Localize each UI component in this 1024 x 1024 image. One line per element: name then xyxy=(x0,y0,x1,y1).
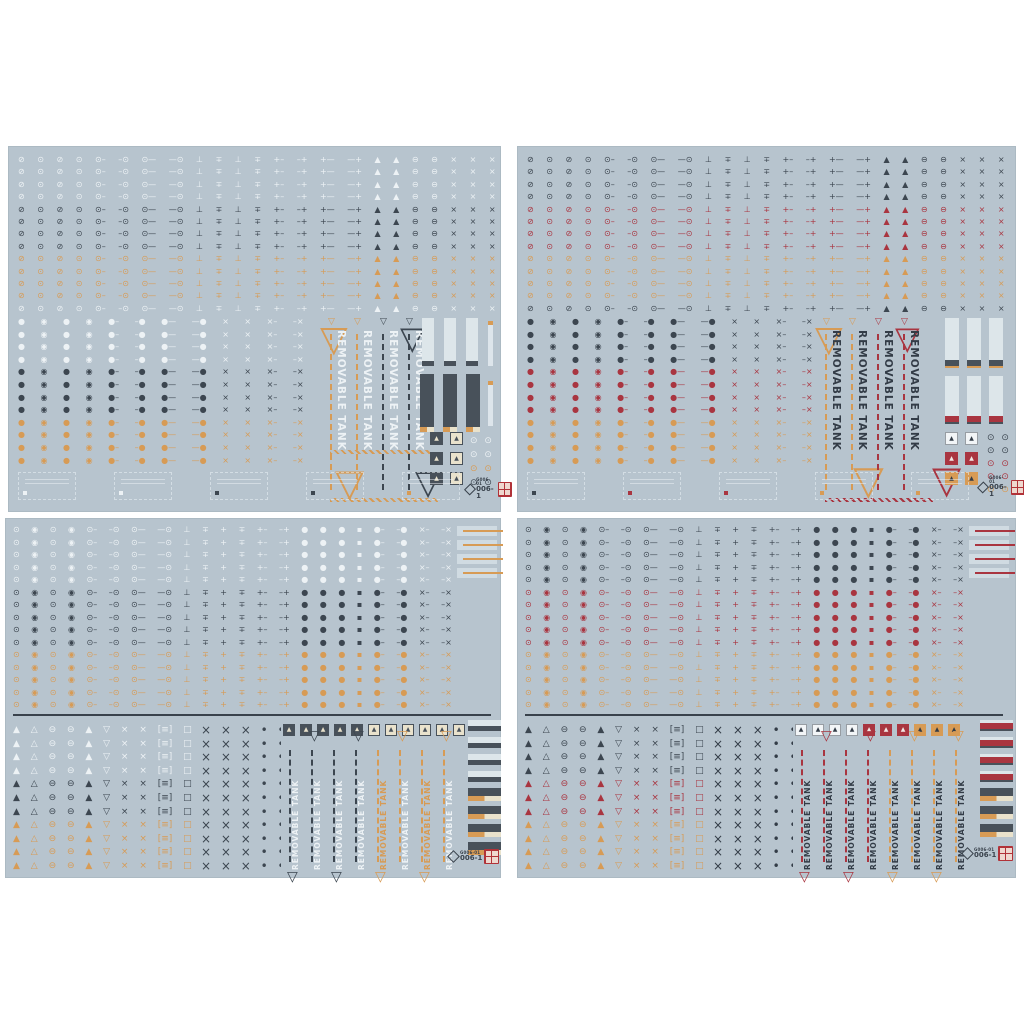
warning-label-square-cream: ▲ xyxy=(450,432,463,445)
brand-diamond-logo xyxy=(977,481,989,493)
bracket-box xyxy=(18,472,76,500)
symbol-row: × × × • • xyxy=(713,792,793,806)
bracket-box-microtext xyxy=(217,483,261,484)
symbol-row: × × × • • xyxy=(201,751,281,765)
symbol-row: ⊙ ◉ ⊙ ◉ ⊙– –⊙ ⊙— —⊙ ⊥ ∓ + ∓ +– –+ ● ● ● … xyxy=(525,637,965,650)
micro-text-panel xyxy=(488,321,493,366)
bracket-box-microtext xyxy=(534,479,578,480)
symbol-row: ▲ △ ⊖ ⊖ ▲ ▽ × × [≡] □ ▪ xyxy=(13,833,195,847)
warning-label-grid: ▲▲▲▲▲▲▲▲▲▲ xyxy=(795,724,960,736)
warning-label-square-dark: ▲ xyxy=(430,432,443,445)
symbol-row: ● ◉ ● ◉ ●– –● ●— —● × × ×– –× ×— —× xyxy=(18,455,318,468)
micro-text-panel xyxy=(969,526,1009,536)
warning-label-square-white: ▲ xyxy=(846,724,858,736)
micro-text-panel xyxy=(969,540,1009,550)
panel-footer-accent xyxy=(945,366,959,368)
micro-text-panel xyxy=(444,318,456,366)
bracket-box-microtext xyxy=(918,483,962,484)
brand-diamond-logo xyxy=(447,850,460,863)
warning-label-square-white: ▲ xyxy=(945,432,958,445)
symbol-row: ● ◉ ● ◉ ●– –● ●— —● × × ×– –× ×— —× xyxy=(527,366,827,379)
removable-tank-label: REMOVABLE TANK xyxy=(913,746,922,870)
panel-footer-mark xyxy=(468,743,501,748)
symbol-row: ⊙ ◉ ⊙ ◉ ⊙– –⊙ ⊙— —⊙ ⊥ ∓ + ∓ +– –+ ● ● ● … xyxy=(13,537,453,550)
symbol-row: ⊘ ⊙ ⊘ ⊙ ⊙– –⊙ ⊙— —⊙ ⊥ ∓ ⊥ ∓ +– –+ +— —+ … xyxy=(18,216,498,228)
symbol-row: ▲ △ ⊖ ⊖ ▲ ▽ × × [≡] □ ▪ xyxy=(525,846,707,860)
symbol-row: × × × • • xyxy=(201,806,281,820)
brand-codes: G006-01006-1 xyxy=(974,848,996,859)
seal-glyph-cell xyxy=(492,851,498,857)
symbol-row: ⊙ ◉ ⊙ ◉ ⊙– –⊙ ⊙— —⊙ ⊥ ∓ + ∓ +– –+ ● ● ● … xyxy=(525,612,965,625)
bracket-box-dot xyxy=(724,491,728,495)
symbol-row: ⊙ ◉ ⊙ ◉ ⊙– –⊙ ⊙— —⊙ ⊥ ∓ + ∓ +– –+ ● ● ● … xyxy=(13,687,453,700)
micro-text-panel xyxy=(989,318,1003,368)
symbol-row: × × × • • xyxy=(713,806,793,820)
symbol-row: ▲ △ ⊖ ⊖ ▲ ▽ × × [≡] □ ▪ xyxy=(525,738,707,752)
symbol-row: × × × • • xyxy=(201,819,281,833)
panel-footer-mark xyxy=(466,427,480,432)
symbol-row: ⊘ ⊙ ⊘ ⊙ ⊙– –⊙ ⊙— —⊙ ⊥ ∓ ⊥ ∓ +– –+ +— —+ … xyxy=(527,216,1011,228)
symbol-grid: ⊙ ◉ ⊙ ◉ ⊙– –⊙ ⊙— —⊙ ⊥ ∓ + ∓ +– –+ ● ● ● … xyxy=(13,524,453,712)
panel-footer-mark xyxy=(422,361,434,366)
panel-footer-accent xyxy=(989,422,1003,424)
removable-tank-column: ▽REMOVABLE TANK xyxy=(843,744,865,868)
symbol-row: × × × • • xyxy=(201,792,281,806)
removable-tank-column: ▽REMOVABLE TANK xyxy=(875,328,901,496)
tank-dash-line xyxy=(877,334,879,490)
symbol-row: × × × • • xyxy=(201,738,281,752)
bracket-box-microtext xyxy=(822,479,866,480)
panel-footer-mark xyxy=(980,832,1013,837)
symbol-row: ▲ △ ⊖ ⊖ ▲ ▽ × × [≡] □ ▪ xyxy=(525,819,707,833)
symbol-row: ⊙ ◉ ⊙ ◉ ⊙– –⊙ ⊙— —⊙ ⊥ ∓ + ∓ +– –+ ● ● ● … xyxy=(13,562,453,575)
seal-glyph-cell xyxy=(492,857,498,863)
symbol-row: ● ◉ ● ◉ ●– –● ●— —● × × ×– –× ×— —× xyxy=(18,329,318,342)
bracket-box-microtext xyxy=(630,483,674,484)
warning-label-square-red: ▲ xyxy=(880,724,892,736)
micro-text-panel xyxy=(420,374,434,432)
tank-triangle-icon: ▽ xyxy=(309,729,320,743)
tank-triangle-icon: ▽ xyxy=(875,318,882,327)
decal-sheet-top-left: ⊘ ⊙ ⊘ ⊙ ⊙– –⊙ ⊙— —⊙ ⊥ ∓ ⊥ ∓ +– –+ +— —+ … xyxy=(8,146,501,512)
tank-triangle-icon: ▽ xyxy=(287,870,298,884)
removable-tank-column: ▽REMOVABLE TANK xyxy=(375,744,397,868)
micro-text-panel xyxy=(980,788,1013,801)
brand-codes: G006-01006-1 xyxy=(989,476,1009,498)
tank-dash-line xyxy=(851,334,853,490)
bracket-box-dot xyxy=(23,491,27,495)
micro-text-panel xyxy=(443,374,457,432)
symbol-row: ⊘ ⊙ ⊘ ⊙ ⊙– –⊙ ⊙— —⊙ ⊥ ∓ ⊥ ∓ +– –+ +— —+ … xyxy=(18,204,498,216)
removable-tank-column: ▽REMOVABLE TANK xyxy=(887,744,909,868)
tank-dash-line xyxy=(356,334,358,490)
micro-text-panel xyxy=(466,374,480,432)
symbol-row: ▲ △ ⊖ ⊖ ▲ ▽ × × [≡] □ ▪ xyxy=(13,846,195,860)
symbol-row: ● ◉ ● ◉ ●– –● ●— —● × × ×– –× ×— —× xyxy=(527,379,827,392)
tank-triangle-icon: ▽ xyxy=(331,870,342,884)
symbol-row: ▲ △ ⊖ ⊖ ▲ ▽ × × [≡] □ ▪ xyxy=(525,724,707,738)
brand-codes: G006-01006-1 xyxy=(476,478,496,500)
symbol-row: ▲ △ ⊖ ⊖ ▲ ▽ × × [≡] □ ▪ xyxy=(13,806,195,820)
symbol-row: ● ◉ ● ◉ ●– –● ●— —● × × ×– –× ×— —× xyxy=(527,429,827,442)
panel-footer-accent xyxy=(989,366,1003,368)
symbol-row: ▲ △ ⊖ ⊖ ▲ ▽ × × [≡] □ ▪ xyxy=(13,860,195,874)
tank-triangle-icon: ▽ xyxy=(953,729,964,743)
tank-triangle-icon: ▽ xyxy=(419,870,430,884)
removable-tank-column: ▽REMOVABLE TANK xyxy=(328,328,354,496)
bracket-box-microtext xyxy=(630,479,674,480)
symbol-row: ⊙ ◉ ⊙ ◉ ⊙– –⊙ ⊙— —⊙ ⊥ ∓ + ∓ +– –+ ● ● ● … xyxy=(525,699,965,712)
tank-triangle-icon: ▽ xyxy=(823,318,830,327)
bracket-box-dot xyxy=(215,491,219,495)
seal-glyph-cell xyxy=(1018,481,1023,487)
brand-diamond-logo xyxy=(961,847,974,860)
bracket-box-microtext xyxy=(726,483,770,484)
symbol-row: × × × • • xyxy=(713,724,793,738)
tank-dash-line xyxy=(382,334,384,490)
bracket-box-microtext xyxy=(217,479,261,480)
removable-tank-label: REMOVABLE TANK xyxy=(423,746,432,870)
symbol-grid: × × × • •× × × • •× × × • •× × × • •× × … xyxy=(713,724,793,874)
warning-label-square-dark: ▲ xyxy=(283,724,295,736)
micro-text-panel xyxy=(468,824,501,837)
panel-center-dash xyxy=(463,544,503,546)
tank-dash-line xyxy=(330,334,332,490)
tank-dash-line xyxy=(825,334,827,490)
tank-dash-line xyxy=(408,334,410,490)
seal-glyph-cell xyxy=(1006,854,1012,860)
symbol-row: ● ◉ ● ◉ ●– –● ●— —● × × ×– –× ×— —× xyxy=(527,316,827,329)
bracket-box xyxy=(306,472,364,500)
symbol-row: ▲ △ ⊖ ⊖ ▲ ▽ × × [≡] □ ▪ xyxy=(13,738,195,752)
bracket-box-dot xyxy=(820,491,824,495)
panel-center-dash xyxy=(975,530,1015,532)
symbol-row: ⊙ ◉ ⊙ ◉ ⊙– –⊙ ⊙— —⊙ ⊥ ∓ + ∓ +– –+ ● ● ● … xyxy=(525,562,965,575)
seal-glyph-cell xyxy=(486,857,492,863)
symbol-row: × × × • • xyxy=(713,833,793,847)
symbol-row: ⊘ ⊙ ⊘ ⊙ ⊙– –⊙ ⊙— —⊙ ⊥ ∓ ⊥ ∓ +– –+ +— —+ … xyxy=(18,191,498,203)
circle-pair-row: ⊙ ⊙ xyxy=(987,432,1009,445)
symbol-row: ● ◉ ● ◉ ●– –● ●— —● × × ×– –× ×— —× xyxy=(527,329,827,342)
bracket-box-microtext xyxy=(25,483,69,484)
decal-sheet-top-right: ⊘ ⊙ ⊘ ⊙ ⊙– –⊙ ⊙— —⊙ ⊥ ∓ ⊥ ∓ +– –+ +— —+ … xyxy=(517,146,1016,512)
symbol-grid: ⊘ ⊙ ⊘ ⊙ ⊙– –⊙ ⊙— —⊙ ⊥ ∓ ⊥ ∓ +– –+ +— —+ … xyxy=(527,154,1011,315)
bracket-box-dot xyxy=(916,491,920,495)
bracket-box-microtext xyxy=(822,483,866,484)
warning-label-square-dark: ▲ xyxy=(334,724,346,736)
removable-tank-column: ▽REMOVABLE TANK xyxy=(901,328,927,496)
symbol-row: × × × • • xyxy=(201,833,281,847)
red-seal-logo xyxy=(1011,480,1024,495)
tank-triangle-icon: ▽ xyxy=(406,318,413,327)
warning-label-square-white: ▲ xyxy=(795,724,807,736)
seal-glyph-cell xyxy=(1012,488,1017,494)
tank-triangle-icon: ▽ xyxy=(441,729,452,743)
seal-glyph-cell xyxy=(1018,488,1023,494)
panel-footer-mark xyxy=(468,796,501,801)
symbol-row: ● ◉ ● ◉ ●– –● ●— —● × × ×– –× ×— —× xyxy=(18,366,318,379)
symbol-row: ⊙ ◉ ⊙ ◉ ⊙– –⊙ ⊙— —⊙ ⊥ ∓ + ∓ +– –+ ● ● ● … xyxy=(525,624,965,637)
symbol-row: ⊙ ◉ ⊙ ◉ ⊙– –⊙ ⊙— —⊙ ⊥ ∓ + ∓ +– –+ ● ● ● … xyxy=(525,549,965,562)
removable-tank-label: REMOVABLE TANK xyxy=(825,746,834,870)
panel-footer-mark xyxy=(468,814,501,819)
removable-tank-column: ▽REMOVABLE TANK xyxy=(354,328,380,496)
warning-label-square-red: ▲ xyxy=(965,452,978,465)
panel-footer-mark xyxy=(468,777,501,782)
symbol-grid: ⊘ ⊙ ⊘ ⊙ ⊙– –⊙ ⊙— —⊙ ⊥ ∓ ⊥ ∓ +– –+ +— —+ … xyxy=(18,154,498,315)
bracket-box xyxy=(114,472,172,500)
symbol-row: ● ◉ ● ◉ ●– –● ●— —● × × ×– –× ×— —× xyxy=(18,429,318,442)
symbol-grid: × × × • •× × × • •× × × • •× × × • •× × … xyxy=(201,724,281,874)
removable-tank-label: REMOVABLE TANK xyxy=(847,746,856,870)
panel-center-dash xyxy=(975,572,1015,574)
symbol-row: ⊘ ⊙ ⊘ ⊙ ⊙– –⊙ ⊙— —⊙ ⊥ ∓ ⊥ ∓ +– –+ +— —+ … xyxy=(18,290,498,302)
panel-footer-accent xyxy=(980,746,1013,748)
bracket-box xyxy=(719,472,777,500)
symbol-row: × × × • • xyxy=(201,860,281,874)
symbol-row: ⊙ ◉ ⊙ ◉ ⊙– –⊙ ⊙— —⊙ ⊥ ∓ + ∓ +– –+ ● ● ● … xyxy=(525,574,965,587)
bracket-box xyxy=(210,472,268,500)
removable-tank-label: REMOVABLE TANK xyxy=(869,746,878,870)
removable-tank-column: ▽REMOVABLE TANK xyxy=(909,744,931,868)
red-seal-logo xyxy=(484,849,499,864)
symbol-row: ● ◉ ● ◉ ●– –● ●— —● × × ×– –× ×— —× xyxy=(527,442,827,455)
panel-center-dash xyxy=(975,544,1015,546)
warning-label-row: ▲▲ xyxy=(430,432,463,445)
warning-label-row: ▲▲ xyxy=(430,452,463,465)
symbol-row: ⊙ ◉ ⊙ ◉ ⊙– –⊙ ⊙— —⊙ ⊥ ∓ + ∓ +– –+ ● ● ● … xyxy=(525,662,965,675)
symbol-row: ⊙ ◉ ⊙ ◉ ⊙– –⊙ ⊙— —⊙ ⊥ ∓ + ∓ +– –+ ● ● ● … xyxy=(13,699,453,712)
micro-text-panel xyxy=(980,720,1013,731)
decal-sheet-collage: ⊘ ⊙ ⊘ ⊙ ⊙– –⊙ ⊙— —⊙ ⊥ ∓ ⊥ ∓ +– –+ +— —+ … xyxy=(0,0,1024,1024)
symbol-grid: ● ◉ ● ◉ ●– –● ●— —● × × ×– –× ×— —×● ◉ ●… xyxy=(527,316,827,467)
brand-block: G006-01006-1 xyxy=(979,476,1024,498)
removable-tank-column: ▽REMOVABLE TANK xyxy=(353,744,375,868)
section-divider-line xyxy=(525,714,1003,716)
warning-label-square-dark: ▲ xyxy=(430,452,443,465)
section-divider-line xyxy=(13,714,491,716)
seal-glyph-cell xyxy=(1000,848,1006,854)
micro-text-panel xyxy=(989,376,1003,424)
panel-footer-accent xyxy=(980,763,1013,765)
micro-text-panel xyxy=(468,771,501,782)
panel-dot xyxy=(488,321,493,325)
symbol-row: × × × • • xyxy=(713,860,793,874)
symbol-row: ⊘ ⊙ ⊘ ⊙ ⊙– –⊙ ⊙— —⊙ ⊥ ∓ ⊥ ∓ +– –+ +— —+ … xyxy=(18,179,498,191)
symbol-row: ▲ △ ⊖ ⊖ ▲ ▽ × × [≡] □ ▪ xyxy=(525,778,707,792)
symbol-row: ● ◉ ● ◉ ●– –● ●— —● × × ×– –× ×— —× xyxy=(18,392,318,405)
symbol-row: ⊙ ◉ ⊙ ◉ ⊙– –⊙ ⊙— —⊙ ⊥ ∓ + ∓ +– –+ ● ● ● … xyxy=(525,599,965,612)
seal-glyph-cell xyxy=(1000,854,1006,860)
symbol-row: ⊙ ◉ ⊙ ◉ ⊙– –⊙ ⊙— —⊙ ⊥ ∓ + ∓ +– –+ ● ● ● … xyxy=(13,587,453,600)
symbol-row: ⊙ ◉ ⊙ ◉ ⊙– –⊙ ⊙— —⊙ ⊥ ∓ + ∓ +– –+ ● ● ● … xyxy=(13,574,453,587)
tank-triangle-icon: ▽ xyxy=(328,318,335,327)
symbol-row: ● ◉ ● ◉ ●– –● ●— —● × × ×– –× ×— —× xyxy=(18,341,318,354)
symbol-row: ⊙ ◉ ⊙ ◉ ⊙– –⊙ ⊙— —⊙ ⊥ ∓ + ∓ +– –+ ● ● ● … xyxy=(525,524,965,537)
symbol-row: ▲ △ ⊖ ⊖ ▲ ▽ × × [≡] □ ▪ xyxy=(13,765,195,779)
red-seal-logo xyxy=(498,482,512,497)
bracket-box-microtext xyxy=(534,483,578,484)
tank-triangle-icon: ▽ xyxy=(397,729,408,743)
warning-label-square-cream: ▲ xyxy=(385,724,397,736)
removable-tank-label: REMOVABLE TANK xyxy=(357,746,366,870)
panel-footer-accent xyxy=(980,780,1013,782)
circle-pair-row: ⊙ ⊙ xyxy=(470,448,492,462)
symbol-row: ▲ △ ⊖ ⊖ ▲ ▽ × × [≡] □ ▪ xyxy=(525,765,707,779)
red-seal-logo xyxy=(998,846,1013,861)
bracket-box-microtext xyxy=(409,483,453,484)
bracket-box-microtext xyxy=(25,479,69,480)
panel-footer-mark xyxy=(468,832,501,837)
symbol-row: ● ◉ ● ◉ ●– –● ●— —● × × ×– –× ×— —× xyxy=(18,354,318,367)
bracket-box-dot xyxy=(628,491,632,495)
symbol-row: ▲ △ ⊖ ⊖ ▲ ▽ × × [≡] □ ▪ xyxy=(13,819,195,833)
brand-code-line2: 006-1 xyxy=(476,486,496,500)
symbol-row: ▲ △ ⊖ ⊖ ▲ ▽ × × [≡] □ ▪ xyxy=(13,751,195,765)
symbol-row: ⊘ ⊙ ⊘ ⊙ ⊙– –⊙ ⊙— —⊙ ⊥ ∓ ⊥ ∓ +– –+ +— —+ … xyxy=(527,266,1011,278)
tank-triangle-icon: ▽ xyxy=(375,870,386,884)
brand-code-line2: 006-1 xyxy=(974,852,996,859)
seal-glyph-cell xyxy=(1006,848,1012,854)
symbol-row: × × × • • xyxy=(201,778,281,792)
bracket-box-microtext xyxy=(121,479,165,480)
symbol-row: ● ◉ ● ◉ ●– –● ●— —● × × ×– –× ×— —× xyxy=(527,404,827,417)
micro-text-panel xyxy=(468,720,501,731)
bracket-box xyxy=(911,472,969,500)
bracket-box-microtext xyxy=(121,483,165,484)
removable-tank-column: ▽REMOVABLE TANK xyxy=(287,744,309,868)
seal-glyph-cell xyxy=(505,490,510,496)
warning-label-square-cream: ▲ xyxy=(450,452,463,465)
bracket-box xyxy=(623,472,681,500)
symbol-row: ⊙ ◉ ⊙ ◉ ⊙– –⊙ ⊙— —⊙ ⊥ ∓ + ∓ +– –+ ● ● ● … xyxy=(13,662,453,675)
tank-triangle-icon: ▽ xyxy=(380,318,387,327)
brand-code-line2: 006-1 xyxy=(989,484,1009,498)
symbol-row: ▲ △ ⊖ ⊖ ▲ ▽ × × [≡] □ ▪ xyxy=(525,806,707,820)
symbol-row: ⊘ ⊙ ⊘ ⊙ ⊙– –⊙ ⊙— —⊙ ⊥ ∓ ⊥ ∓ +– –+ +— —+ … xyxy=(18,278,498,290)
symbol-grid: ▲ △ ⊖ ⊖ ▲ ▽ × × [≡] □ ▪▲ △ ⊖ ⊖ ▲ ▽ × × [… xyxy=(13,724,195,874)
symbol-row: ▲ △ ⊖ ⊖ ▲ ▽ × × [≡] □ ▪ xyxy=(525,792,707,806)
symbol-row: ⊙ ◉ ⊙ ◉ ⊙– –⊙ ⊙— —⊙ ⊥ ∓ + ∓ +– –+ ● ● ● … xyxy=(13,624,453,637)
removable-tank-cluster: ▽REMOVABLE TANK▽REMOVABLE TANK▽REMOVABLE… xyxy=(328,328,432,496)
symbol-row: ⊘ ⊙ ⊘ ⊙ ⊙– –⊙ ⊙— —⊙ ⊥ ∓ ⊥ ∓ +– –+ +— —+ … xyxy=(527,278,1011,290)
bracket-box-dot xyxy=(532,491,536,495)
seal-glyph-cell xyxy=(505,483,510,489)
panel-footer-mark xyxy=(468,726,501,731)
micro-text-panel xyxy=(980,771,1013,782)
panel-footer-mark xyxy=(444,361,456,366)
symbol-row: ● ◉ ● ◉ ●– –● ●— —● × × ×– –× ×— —× xyxy=(18,404,318,417)
symbol-row: ⊘ ⊙ ⊘ ⊙ ⊙– –⊙ ⊙— —⊙ ⊥ ∓ ⊥ ∓ +– –+ +— —+ … xyxy=(18,154,498,166)
symbol-row: ⊙ ◉ ⊙ ◉ ⊙– –⊙ ⊙— —⊙ ⊥ ∓ + ∓ +– –+ ● ● ● … xyxy=(525,587,965,600)
symbol-row: ⊙ ◉ ⊙ ◉ ⊙– –⊙ ⊙— —⊙ ⊥ ∓ + ∓ +– –+ ● ● ● … xyxy=(13,524,453,537)
symbol-row: ⊙ ◉ ⊙ ◉ ⊙– –⊙ ⊙— —⊙ ⊥ ∓ + ∓ +– –+ ● ● ● … xyxy=(525,649,965,662)
removable-tank-label: REMOVABLE TANK xyxy=(401,746,410,870)
seal-glyph-cell xyxy=(499,483,504,489)
symbol-row: × × × • • xyxy=(713,846,793,860)
removable-tank-label: REMOVABLE TANK xyxy=(935,746,944,870)
tank-dash-line xyxy=(903,334,905,490)
bracket-box-dot xyxy=(407,491,411,495)
panel-center-dash xyxy=(975,558,1015,560)
symbol-row: ● ◉ ● ◉ ●– –● ●— —● × × ×– –× ×— —× xyxy=(18,417,318,430)
removable-tank-label: REMOVABLE TANK xyxy=(335,746,344,870)
symbol-row: ⊙ ◉ ⊙ ◉ ⊙– –⊙ ⊙— —⊙ ⊥ ∓ + ∓ +– –+ ● ● ● … xyxy=(13,649,453,662)
symbol-row: ⊙ ◉ ⊙ ◉ ⊙– –⊙ ⊙— —⊙ ⊥ ∓ + ∓ +– –+ ● ● ● … xyxy=(13,674,453,687)
panel-footer-accent xyxy=(967,422,981,424)
micro-text-panel xyxy=(468,788,501,801)
tank-triangle-icon: ▽ xyxy=(843,870,854,884)
symbol-row: ⊘ ⊙ ⊘ ⊙ ⊙– –⊙ ⊙— —⊙ ⊥ ∓ ⊥ ∓ +– –+ +— —+ … xyxy=(527,204,1011,216)
micro-text-panel xyxy=(457,554,497,564)
symbol-row: ▲ △ ⊖ ⊖ ▲ ▽ × × [≡] □ ▪ xyxy=(13,724,195,738)
bracket-box-row xyxy=(18,472,460,500)
bracket-box xyxy=(815,472,873,500)
symbol-row: ⊙ ◉ ⊙ ◉ ⊙– –⊙ ⊙— —⊙ ⊥ ∓ + ∓ +– –+ ● ● ● … xyxy=(13,549,453,562)
panel-footer-mark xyxy=(466,361,478,366)
circle-pair-row: ⊙ ⊙ xyxy=(987,458,1009,471)
tank-triangle-icon: ▽ xyxy=(931,870,942,884)
warning-label-square-cream: ▲ xyxy=(368,724,380,736)
bracket-box xyxy=(527,472,585,500)
tank-triangle-icon: ▽ xyxy=(865,729,876,743)
symbol-row: ● ◉ ● ◉ ●– –● ●— —● × × ×– –× ×— —× xyxy=(527,392,827,405)
symbol-row: ⊘ ⊙ ⊘ ⊙ ⊙– –⊙ ⊙— —⊙ ⊥ ∓ ⊥ ∓ +– –+ +— —+ … xyxy=(527,303,1011,315)
symbol-row: ● ◉ ● ◉ ●– –● ●— —● × × ×– –× ×— —× xyxy=(527,455,827,468)
warning-label-square-red: ▲ xyxy=(897,724,909,736)
symbol-row: ⊘ ⊙ ⊘ ⊙ ⊙– –⊙ ⊙— —⊙ ⊥ ∓ ⊥ ∓ +– –+ +— —+ … xyxy=(527,191,1011,203)
bracket-box-microtext xyxy=(918,479,962,480)
panel-center-dash xyxy=(463,530,503,532)
micro-text-panel xyxy=(980,737,1013,748)
symbol-row: ● ◉ ● ◉ ●– –● ●— —● × × ×– –× ×— —× xyxy=(18,442,318,455)
tank-triangle-icon: ▽ xyxy=(909,729,920,743)
removable-tank-column: ▽REMOVABLE TANK xyxy=(931,744,953,868)
removable-tank-cluster: ▽REMOVABLE TANK▽REMOVABLE TANK▽REMOVABLE… xyxy=(823,328,927,496)
panel-footer-accent xyxy=(967,366,981,368)
warning-label-row: ▲▲ xyxy=(945,452,978,465)
symbol-row: × × × • • xyxy=(713,765,793,779)
removable-tank-column: ▽REMOVABLE TANK xyxy=(849,328,875,496)
warning-label-square-cream: ▲ xyxy=(453,724,465,736)
removable-tank-column: ▽REMOVABLE TANK xyxy=(865,744,887,868)
symbol-row: ● ◉ ● ◉ ●– –● ●— —● × × ×– –× ×— —× xyxy=(527,354,827,367)
removable-tank-column: ▽REMOVABLE TANK xyxy=(397,744,419,868)
symbol-grid: ● ◉ ● ◉ ●– –● ●— —● × × ×– –× ×— —×● ◉ ●… xyxy=(18,316,318,467)
micro-text-panel xyxy=(980,806,1013,819)
removable-tank-column: ▽REMOVABLE TANK xyxy=(419,744,441,868)
symbol-row: ▲ △ ⊖ ⊖ ▲ ▽ × × [≡] □ ▪ xyxy=(13,778,195,792)
bracket-box-microtext xyxy=(313,483,357,484)
micro-text-panel xyxy=(457,526,497,536)
panel-dot xyxy=(488,381,493,385)
warning-label-row: ▲▲▲▲▲▲▲▲▲▲ xyxy=(795,724,960,736)
bracket-box-dot xyxy=(119,491,123,495)
symbol-row: ⊘ ⊙ ⊘ ⊙ ⊙– –⊙ ⊙— —⊙ ⊥ ∓ ⊥ ∓ +– –+ +— —+ … xyxy=(527,241,1011,253)
symbol-row: ⊘ ⊙ ⊘ ⊙ ⊙– –⊙ ⊙— —⊙ ⊥ ∓ ⊥ ∓ +– –+ +— —+ … xyxy=(18,253,498,265)
symbol-row: × × × • • xyxy=(713,738,793,752)
symbol-row: × × × • • xyxy=(713,819,793,833)
removable-tank-label: REMOVABLE TANK xyxy=(803,746,812,870)
panel-footer-mark xyxy=(980,796,1013,801)
removable-tank-label: REMOVABLE TANK xyxy=(291,746,300,870)
warning-label-square-orange: ▲ xyxy=(931,724,943,736)
symbol-row: ⊙ ◉ ⊙ ◉ ⊙– –⊙ ⊙— —⊙ ⊥ ∓ + ∓ +– –+ ● ● ● … xyxy=(13,612,453,625)
micro-text-panel xyxy=(466,318,478,366)
warning-label-square-cream: ▲ xyxy=(419,724,431,736)
tank-triangle-icon: ▽ xyxy=(849,318,856,327)
panel-center-dash xyxy=(463,558,503,560)
